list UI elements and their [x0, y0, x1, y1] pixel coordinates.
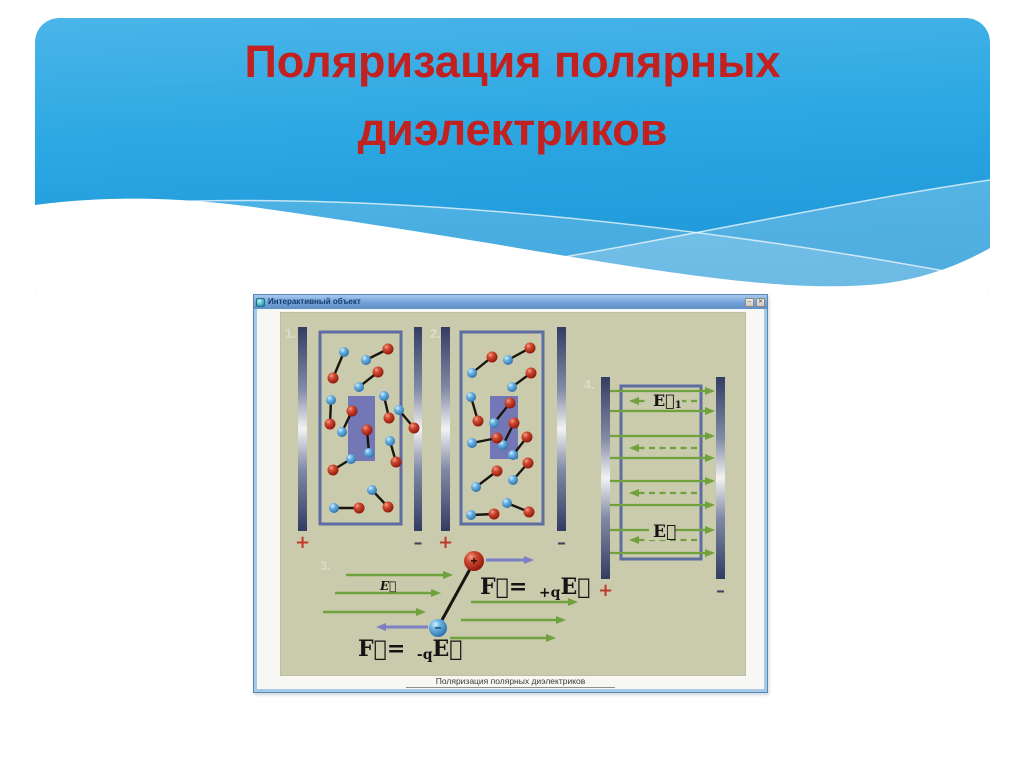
slide-title-line2: диэлектриков — [35, 96, 990, 164]
positive-end — [384, 413, 395, 424]
polarity-sign: – — [716, 580, 725, 601]
negative-end — [385, 436, 395, 446]
positive-end — [492, 466, 503, 477]
polarity-sign: + — [295, 532, 310, 553]
polarity-sign: – — [414, 532, 423, 553]
positive-end — [524, 507, 535, 518]
slide-title-line1: Поляризация полярных — [35, 28, 990, 96]
positive-end — [409, 423, 420, 434]
window-content: +–+–+–1.2.3.4.E⃗1E⃗E⃗+–F⃗= +qE⃗F⃗= -qE⃗ … — [254, 309, 767, 692]
field-label-e-small: E⃗ — [379, 579, 396, 593]
electrode-plate — [557, 327, 566, 531]
positive-end — [325, 419, 336, 430]
field-label-e: E⃗ — [653, 522, 676, 542]
electrode-plate — [298, 327, 307, 531]
positive-end — [526, 368, 537, 379]
negative-end — [503, 355, 513, 365]
window-caption-text: Поляризация полярных диэлектриков — [406, 676, 616, 688]
negative-end — [329, 503, 339, 513]
positive-end — [505, 398, 516, 409]
physics-diagram: +–+–+–1.2.3.4.E⃗1E⃗E⃗+–F⃗= +qE⃗F⃗= -qE⃗ — [280, 312, 746, 676]
negative-end — [379, 391, 389, 401]
positive-end — [347, 406, 358, 417]
panel-number: 1. — [285, 326, 296, 341]
positive-end — [523, 458, 534, 469]
negative-end — [502, 498, 512, 508]
app-window: Интерактивный объект – ✕ — [253, 294, 768, 693]
panel-number: 2. — [430, 326, 441, 341]
positive-end — [354, 503, 365, 514]
positive-end — [328, 465, 339, 476]
negative-end — [346, 454, 356, 464]
negative-end — [361, 355, 371, 365]
positive-end — [525, 343, 536, 354]
positive-end — [373, 367, 384, 378]
positive-end — [391, 457, 402, 468]
polarity-sign: + — [598, 580, 613, 601]
positive-end — [383, 344, 394, 355]
polarity-sign: – — [557, 532, 566, 553]
negative-end — [467, 368, 477, 378]
negative-end — [508, 450, 518, 460]
force-formula-negative: F⃗= -qE⃗ — [358, 636, 463, 663]
window-icon — [256, 298, 265, 307]
positive-end — [492, 433, 503, 444]
electrode-plate — [441, 327, 450, 531]
negative-end — [467, 438, 477, 448]
negative-end — [489, 418, 499, 428]
positive-end — [487, 352, 498, 363]
positive-end — [473, 416, 484, 427]
polarity-sign: + — [438, 532, 453, 553]
presentation-slide: Поляризация полярных диэлектриков Интера… — [0, 0, 1024, 767]
window-buttons: – ✕ — [745, 298, 765, 307]
window-titlebar[interactable]: Интерактивный объект – ✕ — [254, 295, 767, 309]
electrode-plate — [716, 377, 725, 579]
diagram-canvas — [280, 312, 746, 676]
negative-end — [367, 485, 377, 495]
minimize-button[interactable]: – — [745, 298, 754, 307]
window-caption: Поляризация полярных диэлектриков — [257, 676, 764, 689]
negative-end — [354, 382, 364, 392]
positive-end — [362, 425, 373, 436]
panel-number: 4. — [584, 377, 595, 392]
negative-end — [364, 448, 374, 458]
negative-end — [507, 382, 517, 392]
positive-end — [383, 502, 394, 513]
negative-end — [471, 482, 481, 492]
negative-end — [326, 395, 336, 405]
positive-charge-sign: + — [470, 554, 477, 568]
negative-end — [394, 405, 404, 415]
positive-end — [489, 509, 500, 520]
negative-end — [466, 392, 476, 402]
negative-end — [466, 510, 476, 520]
electrode-plate — [601, 377, 610, 579]
panel-number: 3. — [320, 558, 331, 573]
negative-end — [508, 475, 518, 485]
close-button[interactable]: ✕ — [756, 298, 765, 307]
window-title: Интерактивный объект — [268, 295, 742, 309]
positive-end — [509, 418, 520, 429]
negative-end — [339, 347, 349, 357]
positive-end — [328, 373, 339, 384]
slide-title: Поляризация полярных диэлектриков — [35, 28, 990, 163]
negative-end — [337, 427, 347, 437]
negative-charge-sign: – — [435, 620, 442, 634]
positive-end — [522, 432, 533, 443]
